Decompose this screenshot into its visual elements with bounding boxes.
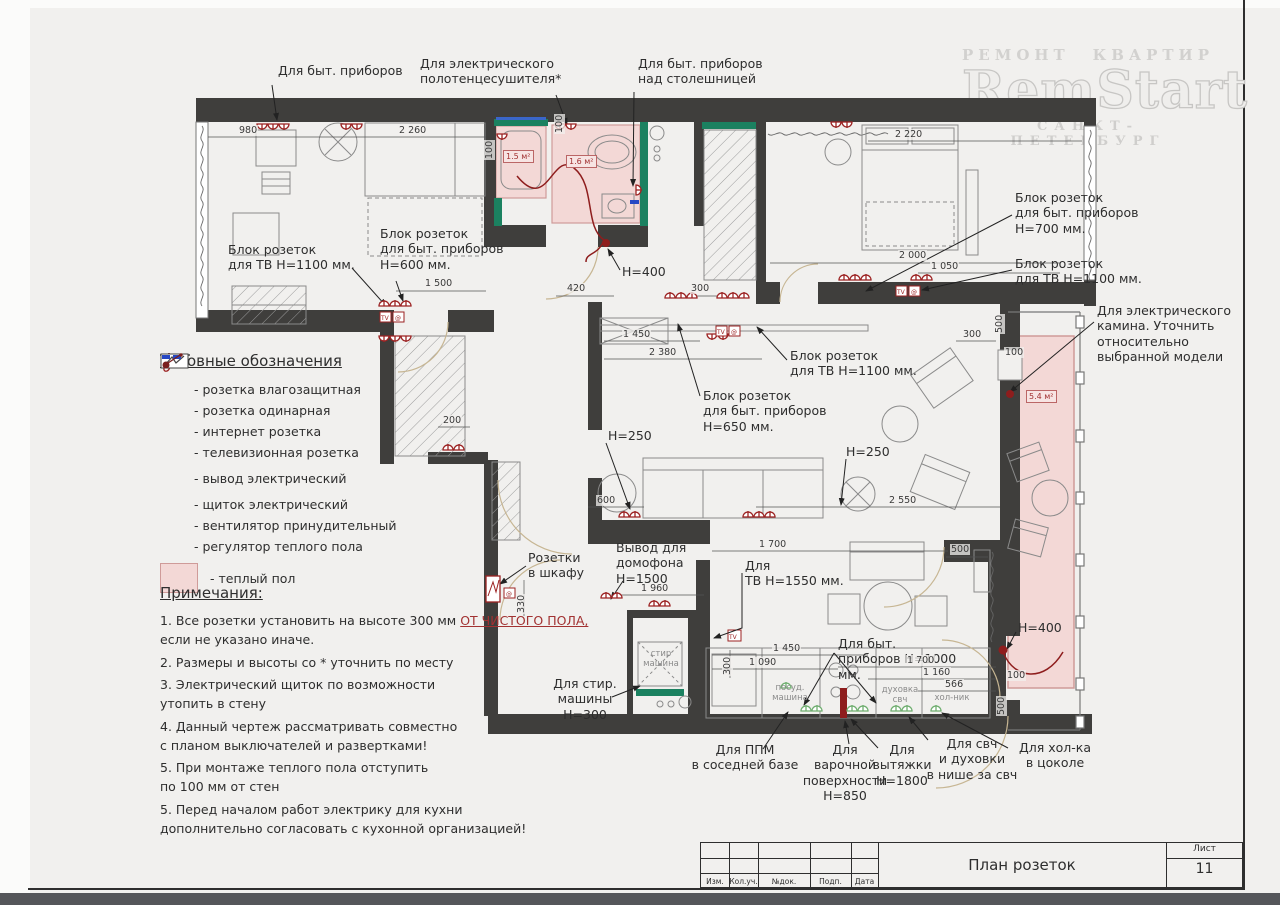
svg-text:TV: TV — [896, 289, 906, 296]
dim: 1 450 — [772, 643, 801, 654]
hood-duct — [840, 688, 847, 718]
tv-icon: TV — [728, 634, 738, 641]
callout-appliance-block-600: Блок розеток для быт. приборов Н=600 мм. — [380, 226, 520, 272]
dim: 500 — [996, 696, 1007, 716]
callout-h250-right: Н=250 — [846, 444, 906, 459]
dim: 566 — [944, 679, 964, 690]
dim: 600 — [596, 495, 616, 506]
vent-channel — [496, 117, 546, 120]
dim: 100 — [1006, 670, 1026, 681]
tb-col-koluch: Кол.уч. — [729, 877, 758, 886]
note-1: 1. Все розетки установить на высоте 300 … — [160, 612, 600, 650]
sheet-title: План розеток — [879, 843, 1165, 887]
label-washer: стир машина — [640, 650, 682, 670]
notes-title: Примечания: — [160, 584, 600, 602]
legend-item: @ - интернет розетка — [160, 422, 440, 440]
tb-col-podp: Подп. — [810, 877, 851, 886]
svg-text:@: @ — [731, 329, 737, 336]
dim: 2 220 — [894, 129, 923, 140]
legend-item: - розетка одинарная — [160, 401, 440, 419]
svg-text:@: @ — [911, 289, 917, 296]
callout-tv-block-living: Блок розеток для ТВ Н=1100 мм. — [790, 348, 970, 379]
dim: 300 — [690, 283, 710, 294]
svg-text:TV: TV — [380, 315, 390, 322]
dim: 1 450 — [622, 329, 651, 340]
callout-towel-dryer: Для электрического полотенцесушителя* — [420, 56, 580, 87]
dim: 300 — [962, 329, 982, 340]
dim: 980 — [238, 125, 258, 136]
area-label-bath1: 1.5 м² — [503, 150, 534, 163]
callout-ppm: Для ППМ в соседней базе — [680, 742, 810, 773]
dim: 500 — [950, 544, 970, 555]
dim: 420 — [566, 283, 586, 294]
dim: 1 960 — [640, 583, 669, 594]
legend-item: - регулятор теплого пола — [160, 537, 440, 555]
callout-h400-balcony: Н=400 — [1018, 620, 1078, 635]
area-label-balcony: 5.4 м² — [1026, 390, 1057, 403]
legend-item: - щиток электрический — [160, 495, 440, 513]
furniture-bedroom — [825, 125, 978, 255]
sheet-label: Лист — [1167, 844, 1242, 854]
callout-tv-block-kidsroom: Блок розеток для ТВ Н=1100 мм. — [228, 242, 368, 273]
note-3: 3. Электрический щиток по возможности ут… — [160, 676, 600, 714]
callout-tv-block-bedroom: Блок розеток для ТВ Н=1100 мм. — [1015, 256, 1145, 287]
svg-text:TV: TV — [716, 329, 726, 336]
area-label-bath2: 1.6 м² — [566, 155, 597, 168]
callout-fireplace: Для электрического камина. Уточнить отно… — [1097, 303, 1237, 364]
callout-appliance-block-650: Блок розеток для быт. приборов Н=650 мм. — [703, 388, 853, 434]
curtain-wave — [768, 133, 888, 135]
dim: 100 — [1004, 347, 1024, 358]
notes: Примечания: 1. Все розетки установить на… — [160, 584, 600, 842]
dim: 100 — [484, 140, 495, 160]
callout-h250-left: Н=250 — [608, 428, 668, 443]
dim: 2 380 — [648, 347, 677, 358]
label-dishwasher: посуд. машина — [764, 684, 816, 704]
svg-text:@: @ — [395, 315, 401, 322]
dim: 1 050 — [930, 261, 959, 272]
label-oven: духовка свч — [878, 686, 922, 706]
callout-appliance-block-700: Блок розеток для быт. приборов Н=700 мм. — [1015, 190, 1145, 236]
note-2: 2. Размеры и высоты со * уточнить по мес… — [160, 654, 600, 673]
legend: Условные обозначения - розетка влагозащи… — [160, 352, 440, 596]
callout-above-countertop: Для быт. приборов над столешницей — [638, 56, 788, 87]
tb-col-izm: Изм. — [701, 877, 729, 886]
dim: 200 — [442, 415, 462, 426]
callout-appliances-kidsroom: Для быт. приборов — [278, 63, 428, 78]
callout-tv-kitchen: Для ТВ Н=1550 мм. — [745, 558, 875, 589]
legend-item: - розетка влагозащитная — [160, 380, 440, 398]
legend-item: - вывод электрический — [160, 469, 440, 487]
note-5: 5. При монтаже теплого пола отступить по… — [160, 759, 600, 797]
fan-symbol — [630, 200, 639, 204]
dim: 1 090 — [748, 657, 777, 668]
note-1-highlight: ОТ ЧИСТОГО ПОЛА, — [460, 613, 588, 628]
dim: 2 550 — [888, 495, 917, 506]
label-fridge: хол-ник — [924, 694, 980, 704]
dim: 100 — [554, 114, 565, 134]
note-6-red: 5. Перед началом работ электрику для кух… — [160, 801, 600, 839]
legend-item: - вентилятор принудительный — [160, 516, 440, 534]
sheet-number: 11 — [1167, 861, 1242, 877]
dim: 1 700 — [758, 539, 787, 550]
dim: 300 — [722, 656, 733, 676]
callout-h400-bath: Н=400 — [622, 264, 682, 279]
tb-col-data: Дата — [851, 877, 878, 886]
drawing-sheet: { "logo": {"word1":"РЕМОНТ","word2":"КВА… — [0, 0, 1280, 905]
tb-col-ndok: №док. — [758, 877, 810, 886]
dim: 1 160 — [922, 667, 951, 678]
dim: 2 000 — [898, 250, 927, 261]
dim: 1 500 — [424, 278, 453, 289]
title-block: Изм. Кол.уч. №док. Подп. Дата План розет… — [700, 842, 1243, 888]
callout-fridge: Для хол-ка в цоколе — [1005, 740, 1105, 771]
dim: 2 260 — [398, 125, 427, 136]
dim: 1 700 — [906, 655, 935, 666]
callout-sockets-in-wardrobe: Розетки в шкафу — [528, 550, 608, 581]
legend-item: TV - телевизионная розетка — [160, 443, 440, 461]
callout-intercom: Вывод для домофона Н=1500 — [616, 540, 706, 586]
note-4: 4. Данный чертеж рассматривать совместно… — [160, 718, 600, 756]
dim: 500 — [994, 314, 1005, 334]
legend-title: Условные обозначения — [160, 352, 440, 370]
